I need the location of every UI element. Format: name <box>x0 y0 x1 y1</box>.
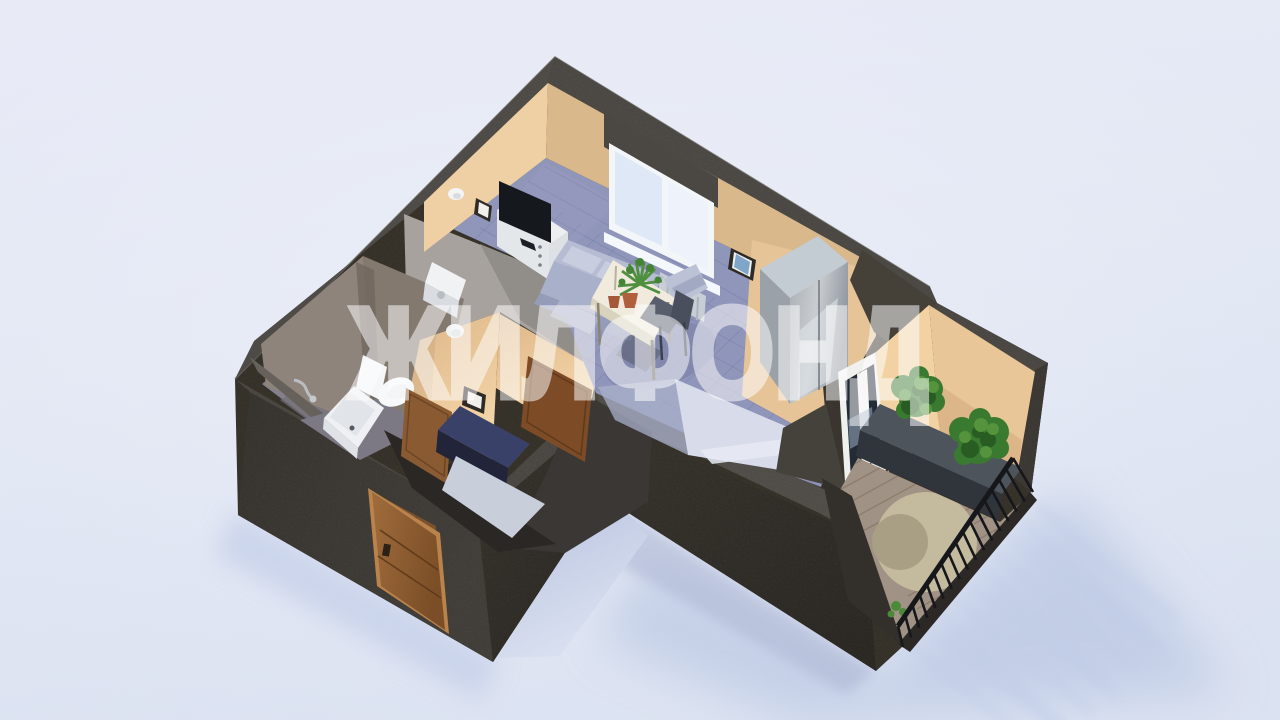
svg-text:ЖИЛФОНД: ЖИЛФОНД <box>349 282 928 425</box>
